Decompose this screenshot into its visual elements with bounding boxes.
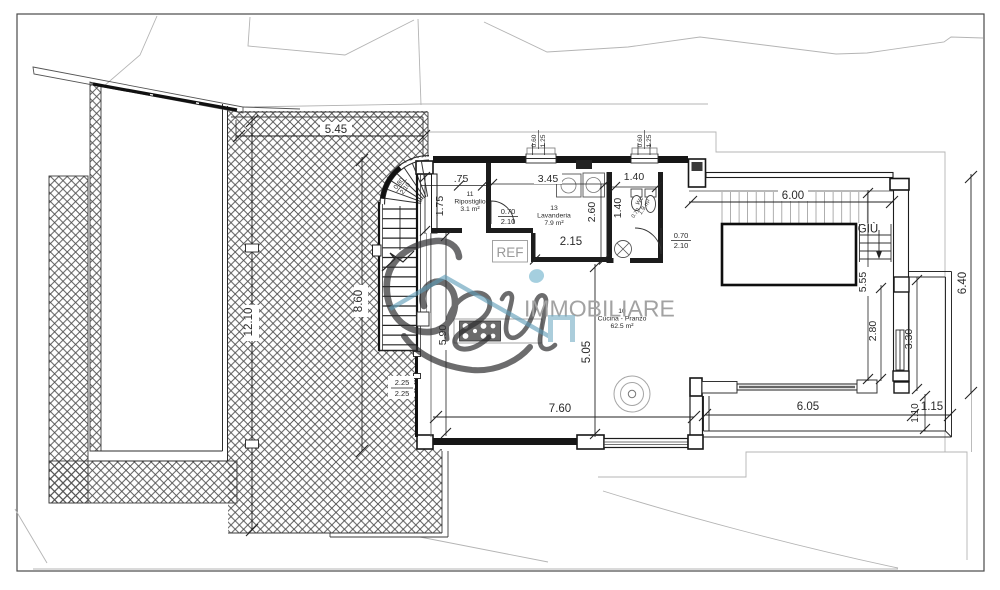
svg-text:0.60: 0.60 bbox=[637, 134, 644, 147]
svg-text:1.40: 1.40 bbox=[612, 198, 624, 219]
svg-text:3.1 m²: 3.1 m² bbox=[460, 206, 480, 213]
svg-text:2.15: 2.15 bbox=[560, 236, 582, 248]
svg-text:0.70: 0.70 bbox=[501, 207, 516, 216]
svg-text:0.60: 0.60 bbox=[531, 134, 538, 147]
svg-text:1.25: 1.25 bbox=[646, 134, 653, 147]
svg-text:Lavanderia: Lavanderia bbox=[537, 213, 571, 220]
svg-text:7.60: 7.60 bbox=[549, 403, 571, 415]
svg-text:8.60: 8.60 bbox=[353, 290, 365, 312]
svg-text:2.10: 2.10 bbox=[501, 217, 516, 226]
svg-text:IMMOBILIARE: IMMOBILIARE bbox=[524, 296, 675, 322]
svg-text:12.10: 12.10 bbox=[243, 308, 255, 337]
svg-text:7.9 m²: 7.9 m² bbox=[544, 220, 564, 227]
svg-text:13: 13 bbox=[550, 205, 558, 212]
svg-text:.75: .75 bbox=[454, 173, 469, 185]
svg-text:5.55: 5.55 bbox=[857, 272, 869, 293]
svg-text:5.45: 5.45 bbox=[325, 124, 347, 136]
svg-text:3.45: 3.45 bbox=[538, 173, 559, 185]
svg-text:6.05: 6.05 bbox=[797, 401, 819, 413]
svg-text:62.5 m²: 62.5 m² bbox=[610, 323, 634, 330]
svg-text:1.40: 1.40 bbox=[624, 171, 645, 183]
svg-text:0.70: 0.70 bbox=[674, 231, 689, 240]
svg-text:5.05: 5.05 bbox=[581, 341, 593, 363]
svg-text:2.10: 2.10 bbox=[674, 241, 689, 250]
svg-text:Ripostiglio: Ripostiglio bbox=[454, 199, 486, 206]
svg-text:2.25: 2.25 bbox=[395, 389, 410, 398]
svg-text:2.80: 2.80 bbox=[867, 321, 879, 342]
svg-text:11: 11 bbox=[466, 191, 473, 198]
svg-text:6.40: 6.40 bbox=[957, 272, 969, 294]
svg-text:1.75: 1.75 bbox=[434, 196, 446, 217]
svg-text:1.10: 1.10 bbox=[910, 403, 921, 423]
svg-text:1.25: 1.25 bbox=[540, 134, 547, 147]
svg-text:3.30: 3.30 bbox=[903, 329, 915, 350]
svg-text:6.00: 6.00 bbox=[782, 190, 804, 202]
svg-text:1.15: 1.15 bbox=[921, 401, 943, 413]
svg-text:2.60: 2.60 bbox=[586, 202, 598, 223]
svg-text:REF: REF bbox=[497, 245, 524, 260]
svg-text:2.25: 2.25 bbox=[395, 378, 410, 387]
